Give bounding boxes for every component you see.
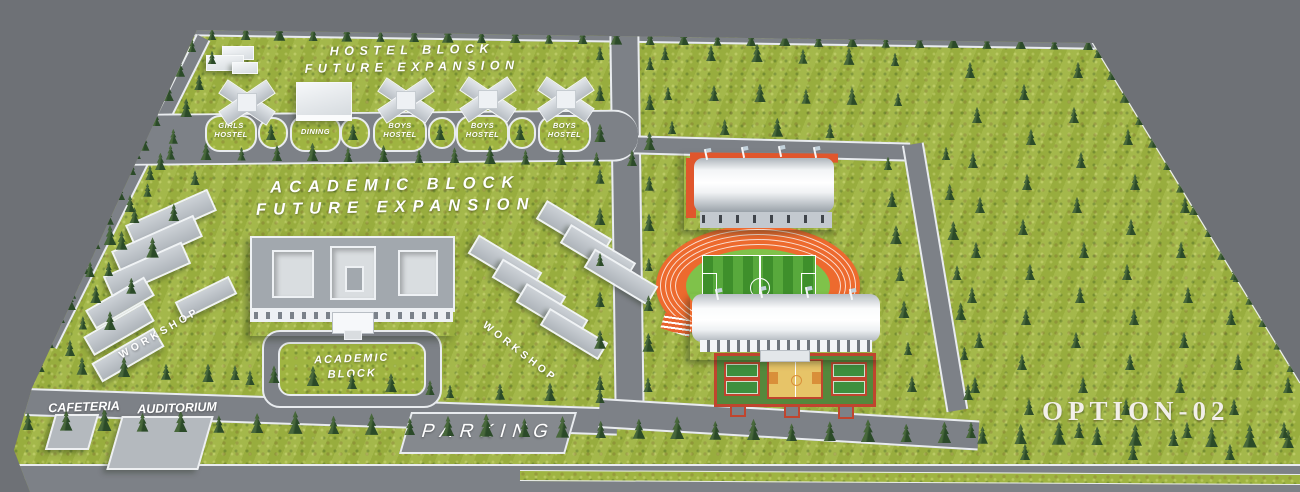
tree-icon [595,47,605,61]
tree-icon [190,170,201,185]
tree-icon [971,107,983,123]
tree-icon [1175,242,1187,258]
tree-icon [64,340,76,356]
girls-hostel-building [216,80,276,124]
hostel-heading-line1: HOSTEL BLOCK [330,42,495,59]
tree-icon [1013,424,1028,444]
tree-icon [1280,152,1292,168]
tree-icon [974,197,986,213]
tree-icon [946,221,960,240]
tree-icon [770,118,784,137]
tree-icon [719,119,731,135]
tree-icon [889,225,903,244]
tree-icon [644,176,655,191]
tree-icon [1126,84,1138,100]
tree-icon [1234,84,1246,100]
cafeteria-building [45,414,99,450]
tree-icon [660,47,670,61]
tree-icon [1024,264,1036,280]
tree-icon [1074,287,1086,303]
tree-icon [954,302,967,320]
tree-icon [1128,309,1140,325]
tree-icon [959,347,969,361]
tree-icon [76,357,89,375]
tree-icon [1077,377,1089,393]
tree-icon [1071,197,1083,213]
tree-icon [1068,107,1080,123]
tree-icon [1225,309,1237,325]
site-plan-scene: GIRLS HOSTEL DINING BOYS HOSTEL BOYS HOS… [0,0,1300,492]
tree-icon [1078,242,1090,258]
tree-icon [1134,110,1145,125]
stadium-north-stand [684,152,838,230]
tree-icon [753,84,767,103]
tree-icon [594,291,606,307]
tree-icon [973,332,985,348]
tree-icon [798,49,809,64]
tree-icon [1172,152,1184,168]
academic-block-building [250,236,455,336]
tree-icon [1167,429,1180,447]
boys-hostel-building-3 [535,77,595,121]
tree-icon [1241,425,1258,448]
tree-icon [967,152,979,168]
tree-icon [1162,157,1172,171]
tree-icon [964,62,976,78]
option-label: OPTION-02 [1042,396,1230,427]
tree-icon [1284,107,1296,123]
tree-icon [970,242,982,258]
tree-icon [494,384,506,400]
boys-hostel2-line1: BOYS [471,121,494,130]
tree-icon [1127,444,1139,460]
tree-icon [445,385,455,399]
boys-hostel2-label: BOYS HOSTEL [458,121,507,139]
tree-icon [1124,354,1136,370]
tree-icon [705,45,717,61]
tree-icon [966,287,978,303]
tree-icon [1147,130,1160,148]
tree-icon [1204,427,1219,447]
dining-label: DINING [292,127,339,136]
tree-icon [1178,332,1190,348]
tree-icon [1021,174,1033,190]
tree-icon [969,377,981,393]
academic-block-line1: ACADEMIC [314,352,390,367]
tree-icon [903,342,913,356]
academic-heading: ACADEMIC BLOCK FUTURE EXPANSION [238,171,554,222]
tree-icon [708,85,720,101]
tree-icon [846,87,859,105]
tree-icon [59,145,69,159]
tree-icon [1176,107,1188,123]
tree-icon [1075,152,1087,168]
tree-icon [1019,444,1031,460]
tree-icon [594,207,607,225]
tree-icon [78,316,88,330]
tree-icon [906,376,918,392]
tree-icon [843,47,856,65]
tree-icon [1070,332,1082,348]
tree-icon [1020,309,1032,325]
tennis-court [831,379,867,396]
tree-icon [667,121,677,135]
dining-line1: DINING [301,127,330,136]
tree-icon [1025,129,1037,145]
tree-icon [663,87,673,101]
girls-hostel-line2: HOSTEL [214,130,247,139]
tree-icon [1277,62,1289,78]
tree-icon [750,44,764,63]
tree-icon [886,191,898,207]
hostel-heading-line2: FUTURE EXPANSION [305,58,520,76]
tree-icon [643,213,656,231]
auditorium-building [106,416,213,470]
tree-icon [1232,354,1244,370]
tree-icon [1121,264,1133,280]
tree-icon [890,53,900,67]
tennis-court [724,379,760,396]
tree-icon [1233,219,1245,235]
cafeteria-label: CAFETERIA [46,399,122,416]
tree-icon [245,370,256,385]
boys-hostel-building-1 [375,78,435,122]
tree-icon [1127,424,1143,446]
tree-icon [1023,399,1035,415]
tree-icon [1226,174,1238,190]
tree-icon [1018,84,1030,100]
dining-building [296,82,352,121]
tree-icon [1072,62,1084,78]
tree-icon [1129,174,1141,190]
tree-icon [595,375,606,390]
tree-icon [1182,287,1194,303]
tree-icon [898,300,911,318]
tree-icon [1090,426,1104,445]
tree-icon [644,94,656,110]
tree-icon [143,183,153,197]
basketball-court [767,359,823,399]
tree-icon [1282,377,1294,393]
tree-icon [1125,219,1137,235]
tennis-court [831,362,867,379]
tree-icon [1122,129,1134,145]
site-grounds: GIRLS HOSTEL DINING BOYS HOSTEL BOYS HOS… [0,0,1300,492]
tree-icon [1180,62,1192,78]
tree-icon [1279,287,1291,303]
tree-icon [645,57,655,71]
academic-heading-line2: FUTURE EXPANSION [256,195,536,219]
tree-icon [94,142,106,158]
tree-icon [595,169,606,184]
tree-icon [1230,129,1242,145]
tree-icon [952,265,963,280]
tree-icon [944,184,956,200]
tree-icon [1179,197,1191,213]
boys-hostel3-line2: HOSTEL [548,130,581,139]
tree-icon [895,266,906,281]
tree-icon [644,258,654,272]
entrance-structure [232,62,258,74]
tree-icon [193,74,205,90]
tree-icon [1119,84,1133,103]
tree-icon [1174,377,1186,393]
boys-hostel3-label: BOYS HOSTEL [540,121,589,139]
tree-icon [1224,444,1236,460]
tree-icon [1017,219,1029,235]
tree-icon [893,93,903,107]
tree-icon [1106,64,1118,80]
tree-icon [543,382,557,401]
tree-icon [1276,197,1288,213]
auditorium-label: AUDITORIUM [134,400,220,417]
boys-hostel2-line2: HOSTEL [466,130,499,139]
boys-hostel1-line1: BOYS [388,121,411,130]
boys-hostel-building-2 [457,77,517,121]
tree-icon [825,123,836,138]
tree-icon [1175,176,1187,192]
tree-icon [201,364,215,383]
tree-icon [35,357,46,372]
tree-icon [1286,332,1298,348]
boys-hostel3-line1: BOYS [553,121,576,130]
tree-icon [594,85,606,101]
stadium-south-stand [690,294,882,360]
tree-icon [160,364,172,380]
tree-icon [1283,242,1295,258]
boys-hostel1-label: BOYS HOSTEL [375,121,425,139]
boys-hostel1-line2: HOSTEL [383,130,416,139]
hostel-heading: HOSTEL BLOCK FUTURE EXPANSION [262,39,563,78]
tree-icon [801,89,812,104]
tree-icon [1016,354,1028,370]
tennis-court [724,362,760,379]
tree-icon [230,365,241,380]
tree-icon [941,147,951,161]
academic-heading-line1: ACADEMIC BLOCK [270,173,520,196]
road-central-vertical [609,36,644,410]
